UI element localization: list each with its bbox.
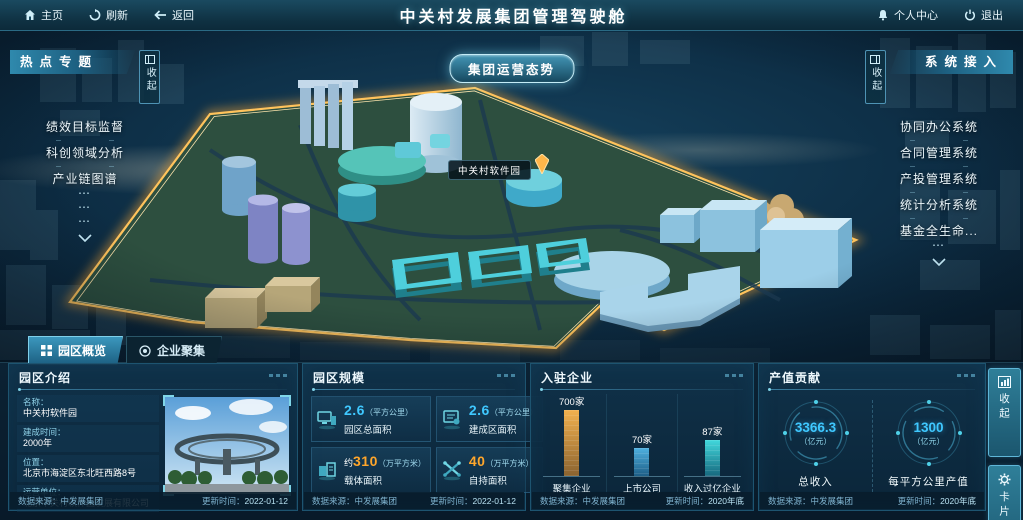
- system-item[interactable]: 统计分析系统: [865, 196, 1013, 214]
- output-value-panel: 产值贡献 3366.3 （亿元）: [758, 363, 986, 511]
- chart-bar: [564, 410, 579, 476]
- gauge-value: 1300: [913, 420, 943, 435]
- output-gauges: 3366.3 （亿元） 总收入: [759, 390, 985, 489]
- gauge-output-per-sqkm: 1300 （亿元） 每平方公里产值: [878, 398, 980, 489]
- target-icon: [139, 345, 151, 357]
- park-intro-panel: 园区介绍 名称： 中关村软件园 建成时间： 2000年 位置： 北京市海淀区东北…: [8, 363, 298, 511]
- gauge-unit: （亿元）: [800, 436, 832, 447]
- stat-built-area: 2.6（平方公里） 建成区面积: [436, 396, 543, 442]
- group-operation-pill[interactable]: 集团运营态势: [449, 54, 574, 83]
- chart-baseline: [614, 476, 671, 477]
- scale-stats-grid: 2.6（平方公里） 园区总面积 2.6（平方公里） 建成区面积 约310（万平方…: [303, 390, 525, 493]
- page-title: 中关村发展集团管理驾驶舱: [324, 3, 703, 27]
- map-pin-icon: [535, 154, 549, 174]
- hot-topics-panel: 热点专题 收起 绩效目标监督 科创领域分析 产业链图谱 ⋯ ⋯ ⋯: [10, 50, 160, 242]
- stat-value: 2.6: [344, 402, 365, 418]
- chart-baseline: [684, 476, 741, 477]
- back-button[interactable]: 返回: [154, 7, 194, 23]
- dashboard-root: 主页 刷新 返回 中关村发展集团管理驾驶舱 个人中心 退出: [0, 0, 1023, 520]
- chevron-down-icon[interactable]: [77, 234, 93, 242]
- stat-park-total-area: 2.6（平方公里） 园区总面积: [311, 396, 431, 442]
- card-settings-button[interactable]: 卡片设置: [988, 465, 1021, 520]
- systems-collapse-button[interactable]: 收起: [865, 50, 886, 104]
- chart-baseline: [543, 476, 600, 477]
- update-time: 更新时间：2020年底: [666, 495, 744, 507]
- systems-panel: 收起 系统接入 协同办公系统 合同管理系统 产投管理系统 统计分析系统 基金全生…: [865, 50, 1013, 266]
- kpi-panels: 园区介绍 名称： 中关村软件园 建成时间： 2000年 位置： 北京市海淀区东北…: [8, 363, 986, 511]
- gauge-unit: （亿元）: [913, 436, 945, 447]
- data-source: 数据来源：中发展集团: [312, 495, 397, 507]
- bell-icon: [877, 9, 889, 21]
- bar-value-label: 87家: [702, 424, 722, 438]
- hot-topic-item[interactable]: 绩效目标监督: [10, 118, 160, 136]
- park-photo-image: [165, 397, 289, 494]
- gauge-total-revenue: 3366.3 （亿元） 总收入: [765, 398, 867, 489]
- field-location: 位置： 北京市海淀区东北旺西路8号: [17, 455, 159, 482]
- chart-bar-column: 700家聚集企业: [537, 394, 606, 502]
- chart-bar: [634, 448, 649, 476]
- field-built-time: 建成时间： 2000年: [17, 425, 159, 452]
- top-bar: 主页 刷新 返回 中关村发展集团管理驾驶舱 个人中心 退出: [0, 0, 1023, 31]
- hot-topic-item[interactable]: 科创领域分析: [10, 144, 160, 162]
- panel-chart-icon: [998, 376, 1011, 388]
- panel-footer: 数据来源：中发展集团 更新时间：2022-01-12: [10, 492, 296, 509]
- data-source: 数据来源：中发展集团: [18, 495, 103, 507]
- panel-title: 园区规模: [313, 369, 515, 386]
- refresh-label: 刷新: [106, 7, 128, 23]
- photo-corner-bracket: [280, 395, 291, 406]
- stat-label: 园区总面积: [344, 422, 413, 436]
- back-label: 返回: [172, 7, 194, 23]
- chart-bar-column: 87家收入过亿企业: [677, 394, 747, 502]
- grid-icon: [41, 345, 52, 356]
- panel-title: 产值贡献: [769, 369, 975, 386]
- bar-value-label: 700家: [559, 394, 584, 408]
- field-name: 名称： 中关村软件园: [17, 395, 159, 422]
- update-time: 更新时间：2022-01-12: [202, 495, 288, 507]
- self-owned-area-icon: [441, 459, 463, 481]
- park-marker-label: 中关村软件园: [448, 160, 531, 180]
- collapse-panel-icon: [145, 55, 155, 64]
- panel-title: 入驻企业: [541, 369, 743, 386]
- data-source: 数据来源：中发展集团: [768, 495, 853, 507]
- stat-label: 载体面积: [344, 473, 426, 487]
- bottom-tabs: 园区概览 企业聚集: [28, 336, 222, 365]
- personal-center-button[interactable]: 个人中心: [877, 7, 938, 23]
- panel-footer: 数据来源：中发展集团 更新时间：2022-01-12: [304, 492, 524, 509]
- logout-button[interactable]: 退出: [964, 7, 1003, 23]
- chart-bar-column: 70家上市公司: [606, 394, 676, 502]
- stat-label: 自持面积: [469, 473, 534, 487]
- home-icon: [24, 9, 36, 21]
- power-icon: [964, 9, 976, 21]
- stat-value: 310: [353, 453, 378, 469]
- panel-deco-dashes: [957, 374, 975, 377]
- update-time: 更新时间：2022-01-12: [430, 495, 516, 507]
- stat-label: 建成区面积: [469, 422, 538, 436]
- park-photo: [165, 397, 289, 494]
- chart-bar: [705, 440, 720, 476]
- gear-icon: [998, 473, 1011, 486]
- home-label: 主页: [41, 7, 63, 23]
- park-total-area-icon: [316, 408, 338, 430]
- park-scale-panel: 园区规模 2.6（平方公里） 园区总面积 2.6（平方公里） 建成区面积: [302, 363, 526, 511]
- stat-self-owned-area: 40（万平方米） 自持面积: [436, 447, 543, 493]
- refresh-button[interactable]: 刷新: [89, 7, 128, 23]
- chevron-down-icon[interactable]: [931, 258, 947, 266]
- hot-topics-collapse-button[interactable]: 收起: [139, 50, 160, 104]
- panel-title: 园区介绍: [19, 369, 287, 386]
- stat-value: 40: [469, 453, 486, 469]
- panel-deco-dashes: [725, 374, 743, 377]
- gauge-label: 总收入: [798, 474, 833, 489]
- carrier-area-icon: [316, 459, 338, 481]
- photo-corner-bracket: [163, 395, 174, 406]
- panel-footer: 数据来源：中发展集团 更新时间：2020年底: [760, 492, 984, 509]
- gauge-value: 3366.3: [795, 420, 836, 435]
- bar-value-label: 70家: [632, 432, 652, 446]
- tab-park-overview[interactable]: 园区概览: [28, 336, 123, 365]
- panel-footer: 数据来源：中发展集团 更新时间：2020年底: [532, 492, 752, 509]
- built-area-icon: [441, 408, 463, 430]
- system-item[interactable]: 合同管理系统: [865, 144, 1013, 162]
- logout-label: 退出: [981, 7, 1003, 23]
- personal-center-label: 个人中心: [894, 7, 938, 23]
- gauge-label: 每平方公里产值: [888, 474, 969, 489]
- home-button[interactable]: 主页: [24, 7, 63, 23]
- right-side-buttons: 收起 卡片设置: [988, 368, 1019, 520]
- stat-value: 2.6: [469, 402, 490, 418]
- enterprise-bar-chart: 700家聚集企业70家上市公司87家收入过亿企业: [531, 390, 753, 502]
- resident-enterprises-panel: 入驻企业 700家聚集企业70家上市公司87家收入过亿企业 数据来源：中发展集团…: [530, 363, 754, 511]
- panel-deco-dashes: [269, 374, 287, 377]
- collapse-panel-icon: [870, 55, 880, 64]
- tab-enterprise-cluster[interactable]: 企业聚集: [126, 336, 222, 365]
- system-item[interactable]: 协同办公系统: [865, 118, 1013, 136]
- refresh-icon: [89, 9, 101, 21]
- cards-collapse-button[interactable]: 收起: [988, 368, 1021, 457]
- system-item[interactable]: 产投管理系统: [865, 170, 1013, 188]
- map-scene: 集团运营态势 中关村软件园 热点专题 收起 绩效目标监督 科创领域分析 产业链: [0, 30, 1023, 362]
- gauge-divider: [872, 400, 873, 492]
- update-time: 更新时间：2020年底: [898, 495, 976, 507]
- hot-topics-ellipsis: ⋯: [10, 216, 160, 230]
- hot-topics-title: 热点专题: [10, 50, 135, 74]
- systems-ellipsis: ⋯: [865, 240, 1013, 254]
- panel-deco-dashes: [497, 374, 515, 377]
- tab-enterprise-cluster-label: 企业聚集: [157, 342, 205, 359]
- back-arrow-icon: [154, 9, 167, 21]
- systems-title: 系统接入: [890, 50, 1013, 74]
- tab-park-overview-label: 园区概览: [58, 342, 106, 359]
- data-source: 数据来源：中发展集团: [540, 495, 625, 507]
- park-marker[interactable]: 中关村软件园: [448, 152, 549, 180]
- stat-carrier-area: 约310（万平方米） 载体面积: [311, 447, 431, 493]
